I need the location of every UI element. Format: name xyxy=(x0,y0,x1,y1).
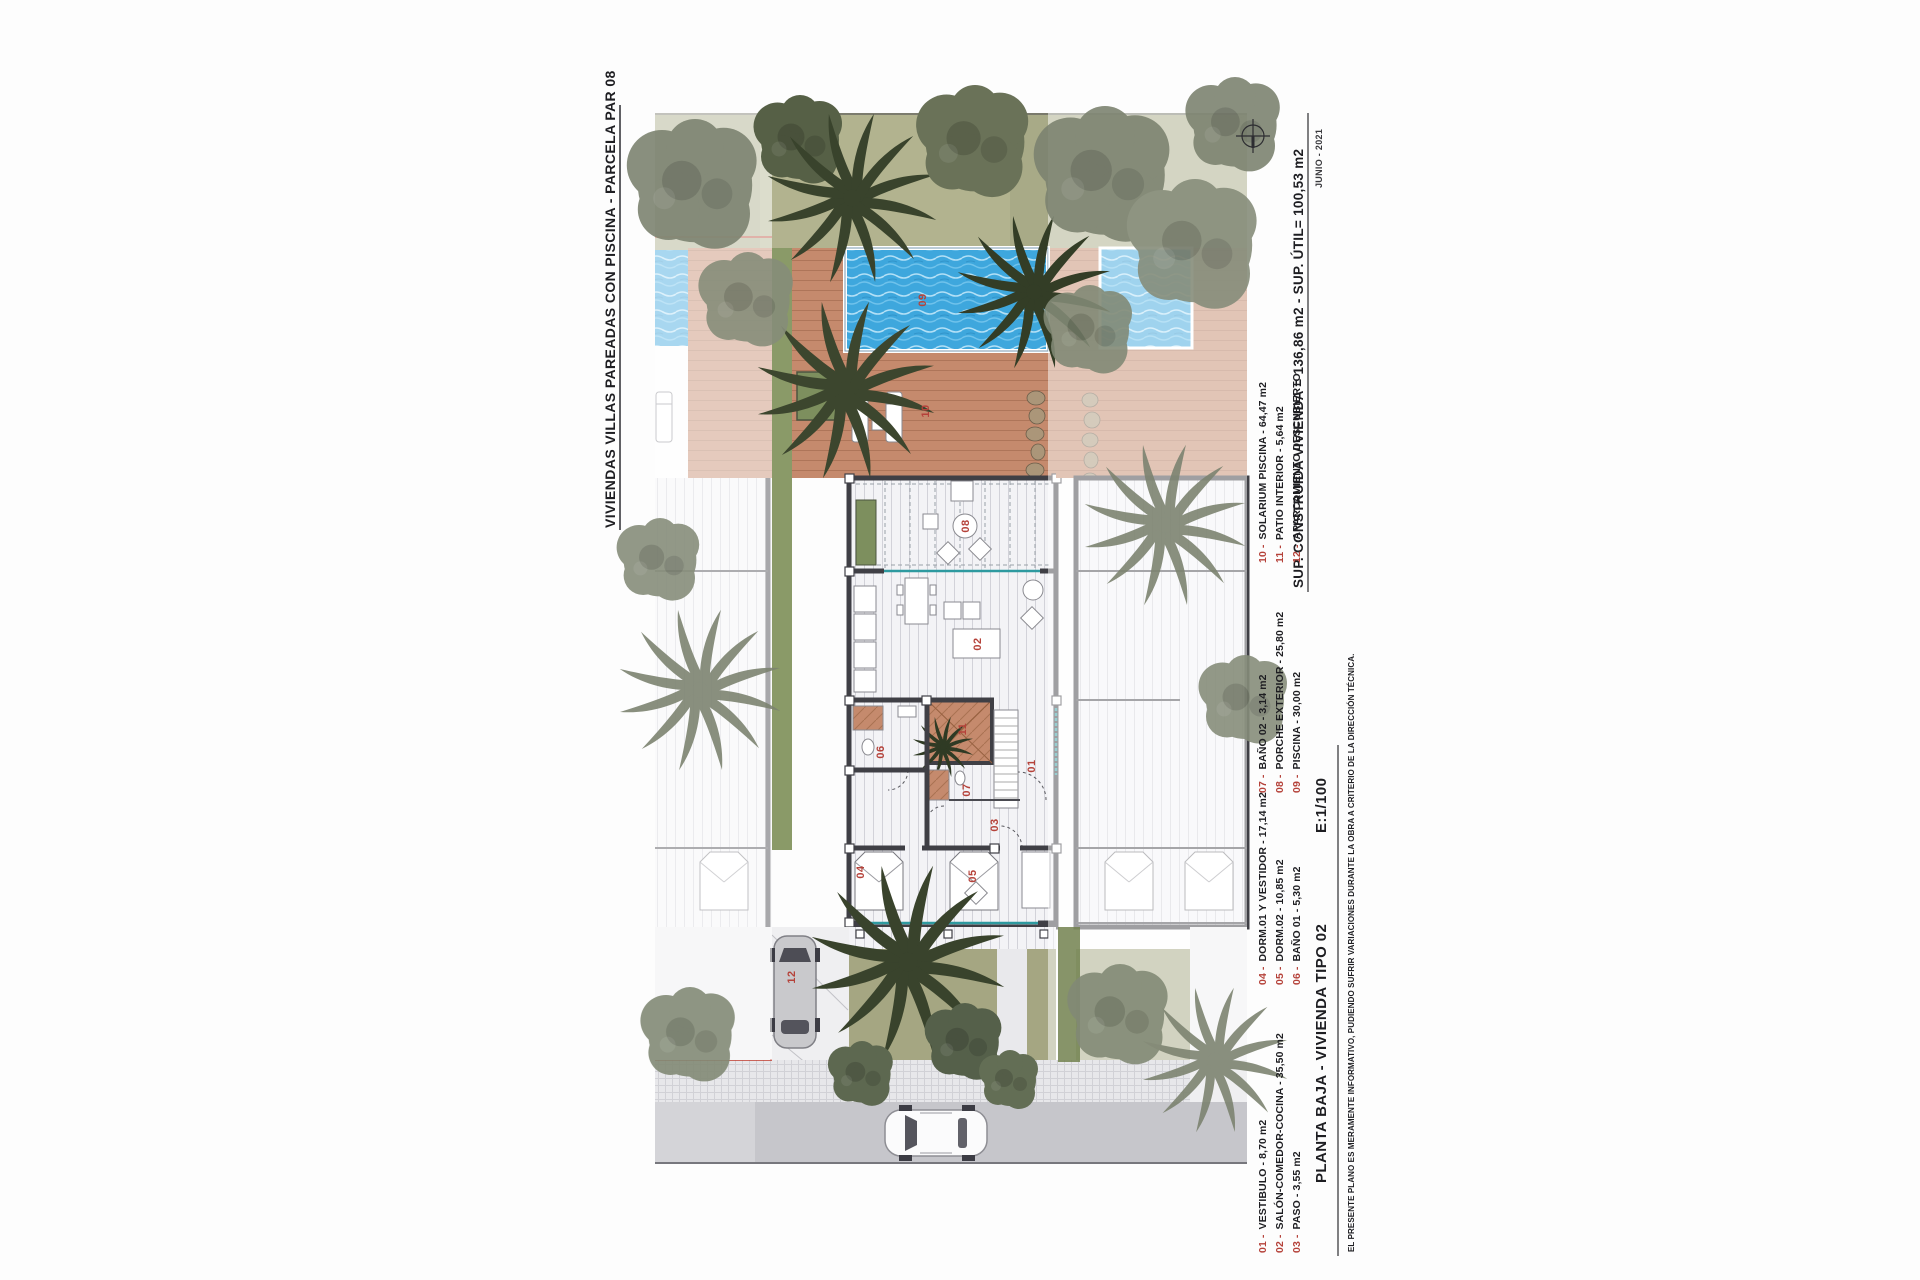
label-bano02: 07 xyxy=(961,783,973,796)
label-aparcamiento: 12 xyxy=(786,970,798,983)
legend-label: BAÑO 01 - 5,30 m2 xyxy=(1290,866,1303,961)
svg-text:03 -PASO - 3,55 m2: 03 -PASO - 3,55 m2 xyxy=(1291,1151,1303,1253)
legend-num: 05 - xyxy=(1274,966,1286,985)
site-plan: 09 10 08 02 11 06 07 03 01 04 05 12 xyxy=(617,77,1288,1163)
svg-text:05 -DORM.02 - 10,85 m2: 05 -DORM.02 - 10,85 m2 xyxy=(1274,859,1286,985)
legend-label: VESTIBULO - 8,70 m2 xyxy=(1257,1120,1269,1230)
bed-dorm01 xyxy=(855,852,903,910)
parked-car xyxy=(770,936,820,1048)
legend-label: PATIO INTERIOR - 5,64 m2 xyxy=(1274,406,1286,540)
legend-num: 09 - xyxy=(1291,774,1303,793)
legend-label: BAÑO 02 - 3,14 m2 xyxy=(1256,674,1269,769)
stairs xyxy=(994,710,1018,808)
svg-text:08 -PORCHE EXTERIOR - 25,80 m2: 08 -PORCHE EXTERIOR - 25,80 m2 xyxy=(1274,612,1286,793)
legend-label: SOLARIUM PISCINA - 64,47 m2 xyxy=(1257,382,1269,540)
label-solarium: 10 xyxy=(920,404,932,417)
scanned-plan-sheet: 09 10 08 02 11 06 07 03 01 04 05 12 VIVI… xyxy=(0,0,1920,1280)
svg-text:07 -BAÑO 02 - 3,14 m2: 07 -BAÑO 02 - 3,14 m2 xyxy=(1256,674,1269,793)
label-vestibulo: 01 xyxy=(1026,759,1038,772)
legend-num: 04 - xyxy=(1257,966,1269,985)
legend-num: 03 - xyxy=(1291,1234,1303,1253)
legend-num: 08 - xyxy=(1274,774,1286,793)
svg-text:06 -BAÑO 01 - 5,30 m2: 06 -BAÑO 01 - 5,30 m2 xyxy=(1290,866,1303,985)
wardrobe xyxy=(1022,852,1050,908)
legend-num: 02 - xyxy=(1274,1234,1286,1253)
legend-num: 12 - xyxy=(1291,544,1303,563)
svg-text:09 -PISCINA - 30,00 m2: 09 -PISCINA - 30,00 m2 xyxy=(1291,672,1303,793)
svg-text:12 -APARCAMIENTO DESCUBIERTO: 12 -APARCAMIENTO DESCUBIERTO xyxy=(1291,373,1303,563)
plan-scale: E:1/100 xyxy=(1313,778,1330,833)
sheet-title: VIVIENDAS VILLAS PAREADAS CON PISCINA - … xyxy=(602,70,618,528)
toilet-07 xyxy=(955,771,965,785)
legend-group-04-06: 04 -DORM.01 Y VESTIDOR - 17,14 m2 05 -DO… xyxy=(1257,792,1303,985)
road xyxy=(655,1102,1247,1163)
legend-group-07-09: 07 -BAÑO 02 - 3,14 m2 08 -PORCHE EXTERIO… xyxy=(1256,612,1303,793)
label-porche: 08 xyxy=(960,519,972,532)
disclaimer: EL PRESENTE PLANO ES MERAMENTE INFORMATI… xyxy=(1347,654,1356,1252)
date-label: JUNIO - 2021 xyxy=(1314,129,1324,188)
svg-text:01 -VESTIBULO - 8,70 m2: 01 -VESTIBULO - 8,70 m2 xyxy=(1257,1120,1269,1253)
label-bano01: 06 xyxy=(875,745,887,758)
legend-num: 10 - xyxy=(1257,544,1269,563)
shower-07 xyxy=(927,770,949,800)
legend-label: APARCAMIENTO DESCUBIERTO xyxy=(1291,373,1303,539)
svg-text:04 -DORM.01 Y VESTIDOR - 17,14: 04 -DORM.01 Y VESTIDOR - 17,14 m2 xyxy=(1257,792,1269,985)
toilet-06 xyxy=(862,739,874,755)
legend-group-01-03: 01 -VESTIBULO - 8,70 m2 02 -SALÓN-COMEDO… xyxy=(1257,1033,1303,1253)
legend-num: 06 - xyxy=(1291,966,1303,985)
legend-label: DORM.02 - 10,85 m2 xyxy=(1274,859,1286,961)
legend-group-10-12: 10 -SOLARIUM PISCINA - 64,47 m2 11 -PATI… xyxy=(1257,373,1303,563)
house xyxy=(845,474,1061,927)
label-dorm01: 04 xyxy=(855,865,867,879)
svg-text:11 -PATIO INTERIOR - 5,64 m2: 11 -PATIO INTERIOR - 5,64 m2 xyxy=(1274,406,1286,563)
plan-drawing: 09 10 08 02 11 06 07 03 01 04 05 12 VIVI… xyxy=(0,0,1920,1280)
label-dorm02: 05 xyxy=(967,869,979,882)
entry-path xyxy=(997,949,1027,1060)
label-patio: 11 xyxy=(957,723,969,736)
label-paso: 03 xyxy=(989,818,1001,831)
label-salon: 02 xyxy=(972,637,984,650)
legend-num: 07 - xyxy=(1257,774,1269,793)
svg-text:10 -SOLARIUM PISCINA - 64,47 m: 10 -SOLARIUM PISCINA - 64,47 m2 xyxy=(1257,382,1269,563)
plan-title: PLANTA BAJA - VIVIENDA TIPO 02 xyxy=(1313,924,1330,1183)
shower-06 xyxy=(853,706,883,730)
legend-num: 01 - xyxy=(1257,1234,1269,1253)
legend-label: PISCINA - 30,00 m2 xyxy=(1291,672,1303,770)
legend-num: 11 - xyxy=(1274,545,1286,563)
road-car xyxy=(885,1105,987,1161)
legend-label: PASO - 3,55 m2 xyxy=(1291,1151,1303,1229)
svg-text:02 -SALÓN-COMEDOR-COCINA - 35,: 02 -SALÓN-COMEDOR-COCINA - 35,50 m2 xyxy=(1273,1033,1286,1253)
porch-planter xyxy=(856,500,876,565)
label-piscina: 09 xyxy=(917,293,929,306)
legend-label: PORCHE EXTERIOR - 25,80 m2 xyxy=(1274,612,1286,770)
legend-label: SALÓN-COMEDOR-COCINA - 35,50 m2 xyxy=(1273,1033,1286,1229)
legend-label: DORM.01 Y VESTIDOR - 17,14 m2 xyxy=(1257,792,1269,961)
